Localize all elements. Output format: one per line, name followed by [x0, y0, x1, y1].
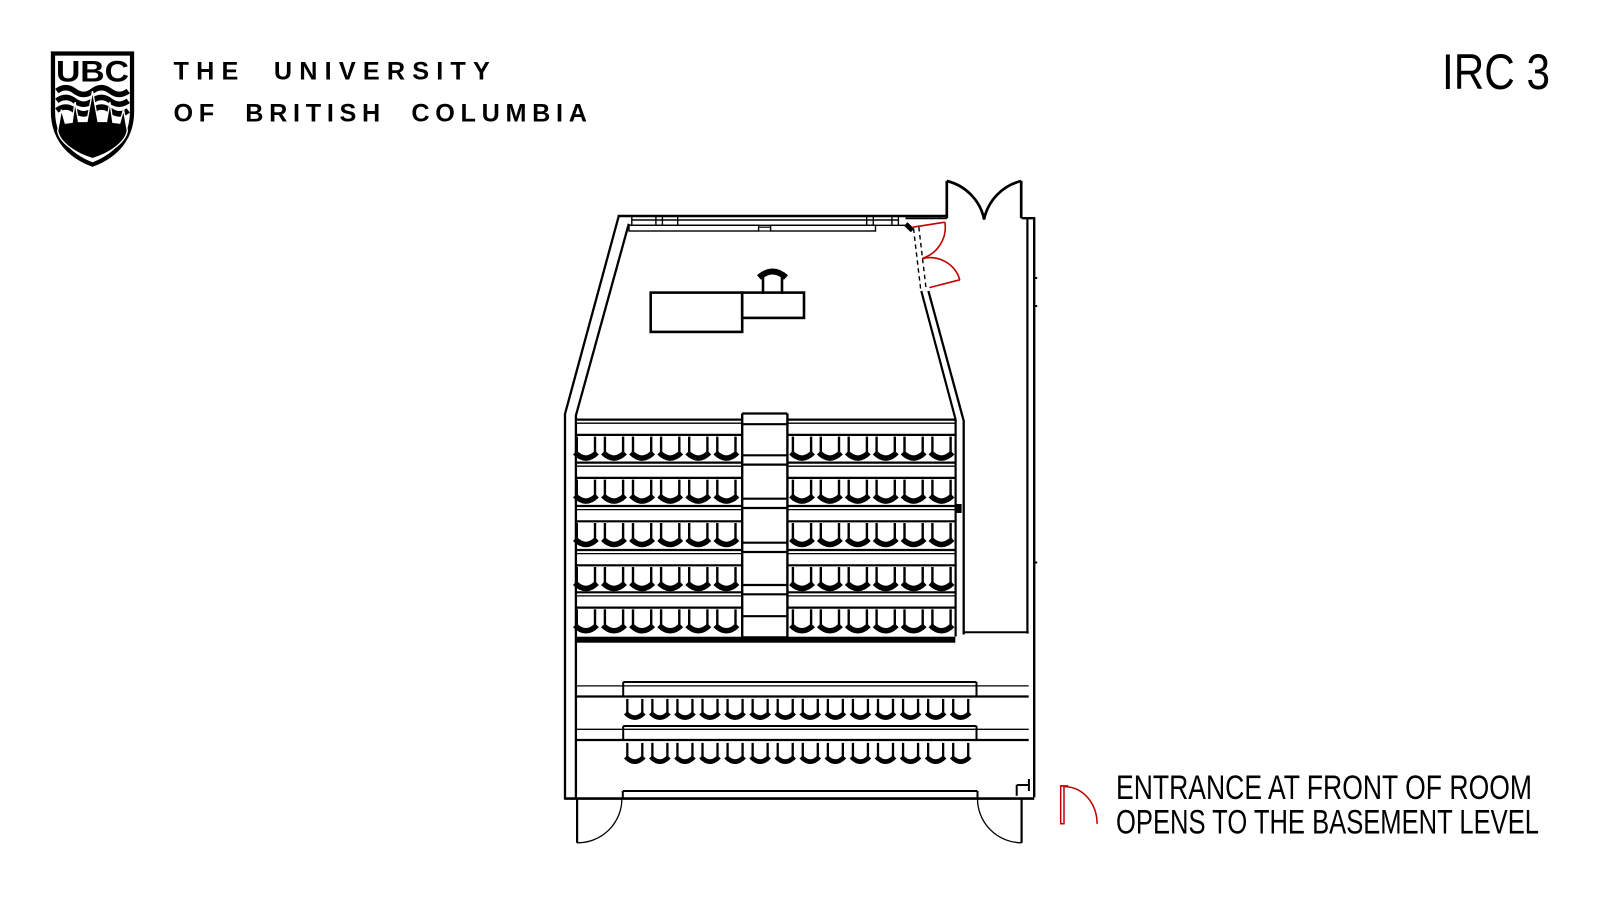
svg-text:UBC: UBC [56, 55, 129, 88]
svg-text:ENTRANCE AT FRONT OF ROOM: ENTRANCE AT FRONT OF ROOM [1116, 769, 1532, 807]
svg-text:OPENS TO THE BASEMENT LEVEL: OPENS TO THE BASEMENT LEVEL [1116, 804, 1539, 842]
svg-text:IRC 3: IRC 3 [1442, 44, 1550, 100]
svg-text:OF BRITISH COLUMBIA: OF BRITISH COLUMBIA [174, 100, 593, 128]
svg-text:THE UNIVERSITY: THE UNIVERSITY [174, 58, 498, 86]
